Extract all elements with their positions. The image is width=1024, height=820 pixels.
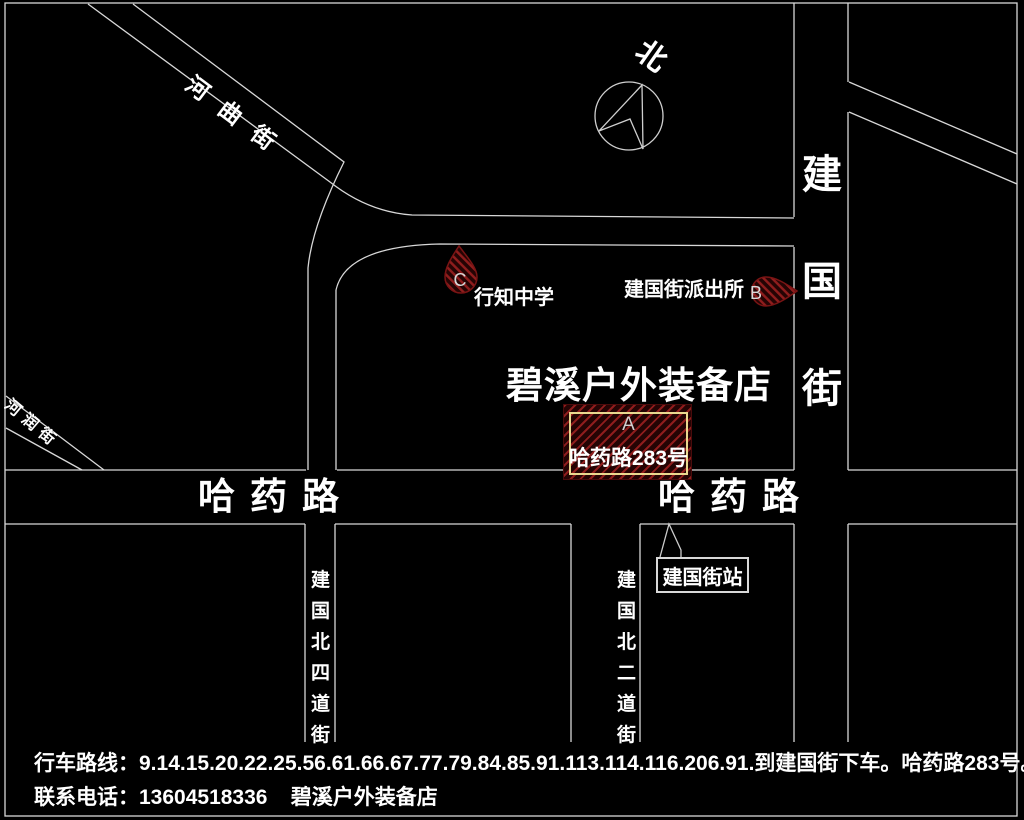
street-name-char: 街	[617, 720, 636, 747]
compass-needle	[599, 85, 643, 149]
street-name-jianguobei4: 建国北四道街	[310, 565, 331, 747]
street-name-jianguobei2: 建国北二道街	[616, 565, 637, 747]
street-name-char: 街	[802, 356, 842, 414]
street-name-char: 建	[617, 565, 636, 592]
footer-contact-line: 联系电话：13604518336 碧溪户外装备店	[34, 786, 438, 809]
road-hequ-lower-edge-connector-left	[133, 4, 344, 470]
street-name-char: 二	[617, 658, 636, 685]
poi-police-label: 建国街派出所	[624, 279, 744, 301]
store-marker-box: A 哈药路283号	[569, 412, 688, 475]
street-name-char: 建	[311, 565, 330, 592]
poi-school-label: 行知中学	[474, 287, 554, 309]
map-canvas: C B	[0, 0, 1024, 820]
station-callout: 建国街站	[656, 557, 749, 593]
street-name-char: 北	[311, 627, 330, 654]
street-name-hayao-left: 哈药路	[198, 477, 354, 518]
pin-b-letter: B	[750, 283, 762, 303]
road-topright-diagonal	[849, 82, 1017, 184]
station-callout-label: 建国街站	[663, 561, 743, 590]
road-hequ-upper-edge	[88, 4, 794, 218]
compass-circle	[595, 82, 663, 150]
map-page: C B 北 河曲街 河润街 建国街 建国北四道街 建国北二道街 哈药路 哈药路 …	[0, 0, 1024, 820]
street-name-hayao-right: 哈药路	[658, 477, 814, 518]
pin-c-letter: C	[454, 270, 467, 290]
store-address: 哈药路283号	[569, 447, 688, 470]
store-title: 碧溪户外装备店	[506, 366, 772, 407]
street-name-char: 道	[617, 689, 636, 716]
street-name-char: 街	[311, 720, 330, 747]
street-name-jianguo: 建国街	[801, 142, 843, 414]
store-marker-letter: A	[622, 415, 635, 435]
station-callout-tail	[660, 524, 681, 557]
street-name-char: 四	[311, 658, 330, 685]
footer-route-line: 行车路线：9.14.15.20.22.25.56.61.66.67.77.79.…	[34, 752, 1024, 775]
street-name-char: 建	[802, 142, 842, 200]
street-name-char: 国	[617, 596, 636, 623]
map-frame	[5, 3, 1017, 816]
street-name-char: 国	[311, 596, 330, 623]
street-name-char: 道	[311, 689, 330, 716]
street-name-char: 国	[802, 249, 842, 307]
street-name-char: 北	[617, 627, 636, 654]
